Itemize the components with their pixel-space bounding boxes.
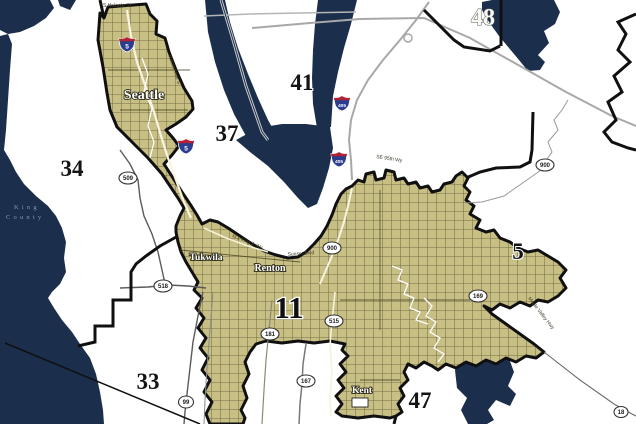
district-label-34: 34 [61,156,85,181]
interstate-number: 405 [338,103,346,109]
route-shield-167: 167 [297,375,315,387]
interstate-number: 5 [184,146,188,153]
district-label-11: 11 [274,290,303,325]
street-label-s-holgate-st: S Holgate St [103,3,132,9]
route-number: 900 [327,246,338,252]
map-viewport: 5 5 405 405 509 518 99 [0,0,636,424]
city-label-seattle: Seattle [124,88,164,103]
district-label-41: 41 [291,70,314,95]
route-shield-169: 169 [469,290,487,302]
route-shield-18: 18 [614,407,628,418]
route-number: 169 [473,294,484,300]
interstate-number: 405 [335,159,343,165]
interstate-number: 5 [125,44,129,51]
district-label-37: 37 [216,121,239,146]
boundary-kent-south [394,416,396,424]
route-number: 900 [540,163,551,169]
route-number: 515 [329,319,340,325]
route-shield-900-west: 900 [323,242,341,254]
district-label-48: 48 [471,5,495,31]
county-label-line1: King [14,204,40,211]
route-number: 509 [123,176,134,182]
kent-unincorporated-notch [352,398,368,407]
route-number: 167 [301,379,312,385]
route-shield-515: 515 [325,315,343,327]
route-number: 99 [183,400,190,406]
route-shield-181: 181 [261,328,279,340]
district-label-47: 47 [409,388,432,413]
county-label-line2: County [6,214,44,221]
route-shield-99: 99 [179,396,194,408]
route-number: 181 [265,332,276,338]
route-number: 18 [618,410,625,416]
district-label-5: 5 [512,239,524,264]
route-number: 518 [158,284,169,290]
city-label-renton: Renton [254,263,286,274]
route-shield-509: 509 [119,172,137,184]
route-shield-900-east: 900 [536,159,554,171]
district-map-canvas: 5 5 405 405 509 518 99 [0,0,636,424]
city-label-kent: Kent [352,386,373,396]
city-label-tukwila: Tukwila [190,253,223,263]
route-shield-518: 518 [154,280,172,292]
district-label-33: 33 [137,369,160,394]
